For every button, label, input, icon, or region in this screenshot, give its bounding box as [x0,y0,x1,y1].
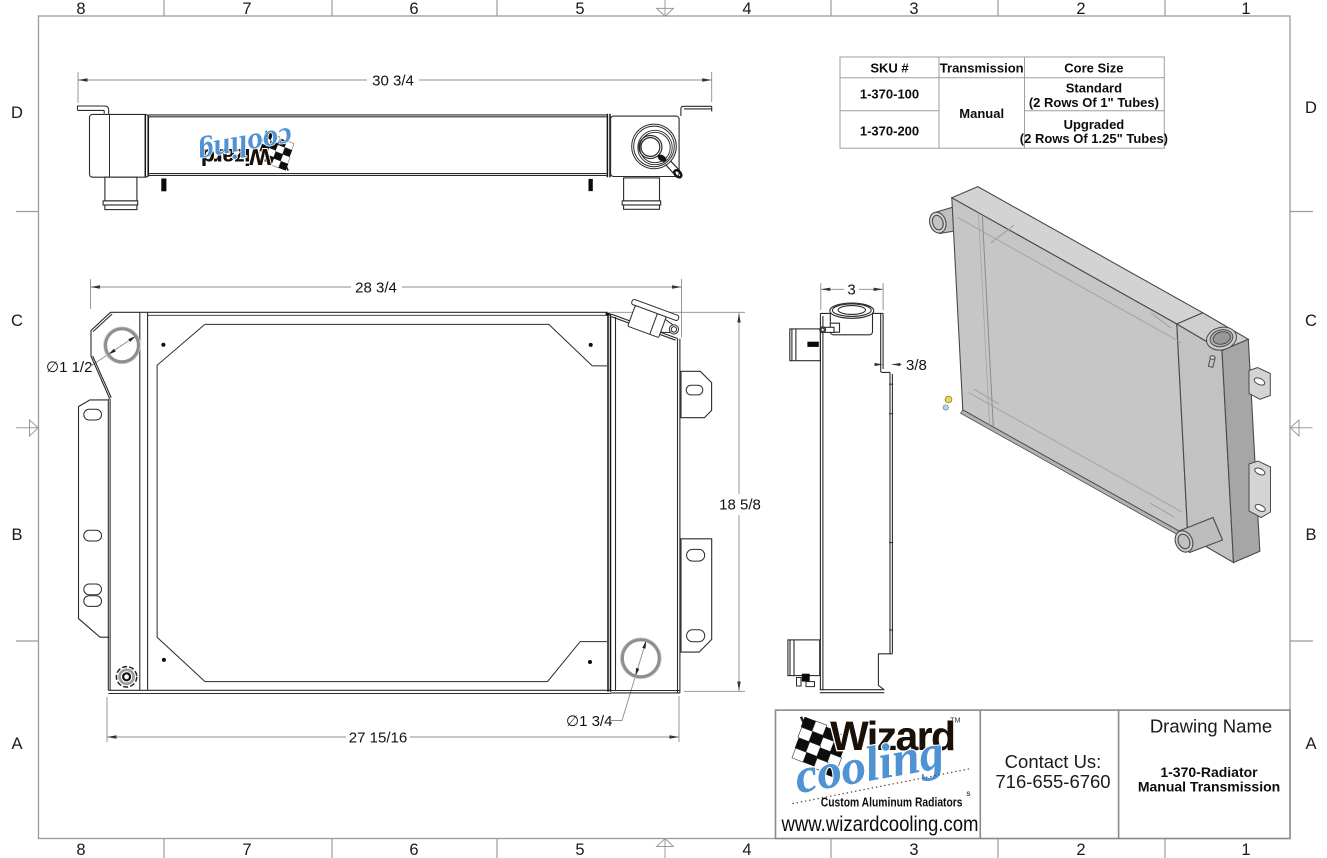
svg-text:Core Size: Core Size [1064,60,1123,75]
svg-text:7: 7 [242,0,251,18]
svg-text:3: 3 [909,841,918,858]
svg-text:Manual: Manual [959,106,1004,121]
svg-text:4: 4 [742,0,751,18]
svg-text:A: A [11,735,22,753]
svg-text:2: 2 [1076,0,1085,18]
svg-text:Manual Transmission: Manual Transmission [1138,779,1280,795]
svg-text:8: 8 [76,841,85,858]
svg-text:27 15/16: 27 15/16 [349,730,407,747]
svg-text:A: A [1305,735,1316,753]
svg-text:www.wizardcooling.com: www.wizardcooling.com [781,813,979,836]
svg-text:B: B [1305,526,1316,544]
svg-text:1: 1 [1241,0,1250,18]
svg-text:5: 5 [575,841,584,858]
svg-text:C: C [11,312,23,330]
svg-text:Drawing Name: Drawing Name [1150,716,1272,737]
svg-text:2: 2 [1076,841,1085,858]
svg-text:30 3/4: 30 3/4 [372,73,414,90]
svg-text:C: C [1305,312,1317,330]
svg-text:D: D [1305,99,1317,117]
svg-text:SKU #: SKU # [870,60,909,75]
svg-text:1-370-200: 1-370-200 [860,124,919,139]
svg-text:3: 3 [909,0,918,18]
svg-text:28 3/4: 28 3/4 [355,280,397,297]
svg-text:5: 5 [575,0,584,18]
svg-text:(2 Rows Of 1.25" Tubes): (2 Rows Of 1.25" Tubes) [1020,131,1168,146]
svg-text:Transmission: Transmission [940,60,1024,75]
svg-text:∅1 3/4: ∅1 3/4 [566,713,612,730]
svg-text:Contact Us:: Contact Us: [1005,751,1102,772]
svg-text:6: 6 [409,0,418,18]
svg-text:Upgraded: Upgraded [1064,117,1125,132]
svg-text:B: B [11,526,22,544]
svg-text:(2 Rows Of 1" Tubes): (2 Rows Of 1" Tubes) [1029,95,1159,110]
svg-text:18 5/8: 18 5/8 [719,497,761,514]
svg-text:∅1 1/2: ∅1 1/2 [46,359,92,376]
svg-text:716-655-6760: 716-655-6760 [995,771,1110,792]
svg-text:3: 3 [847,282,855,299]
svg-text:D: D [11,104,23,122]
svg-text:4: 4 [742,841,751,858]
svg-text:6: 6 [409,841,418,858]
svg-text:1-370-100: 1-370-100 [860,87,919,102]
svg-text:Standard: Standard [1066,81,1122,96]
svg-text:7: 7 [242,841,251,858]
svg-text:1: 1 [1241,841,1250,858]
svg-text:3/8: 3/8 [906,357,927,374]
svg-text:8: 8 [76,0,85,18]
